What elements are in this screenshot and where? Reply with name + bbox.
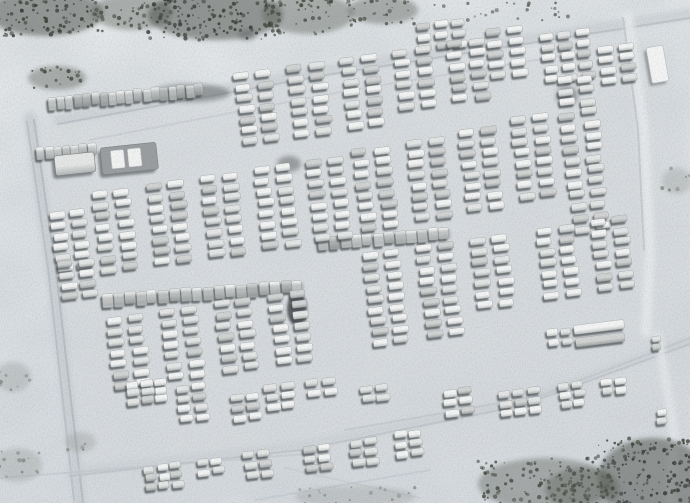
scrub-speck [28, 379, 31, 382]
scrub-speck [565, 470, 567, 472]
vehicle-cluster-b8 [496, 386, 543, 420]
scrub-speck [685, 454, 688, 457]
vehicle [577, 75, 592, 84]
scrub-speck [373, 12, 376, 15]
scrub-speck [681, 481, 683, 483]
vehicle [230, 236, 245, 245]
scrub-speck [26, 16, 28, 18]
vehicle [92, 190, 108, 199]
scrub-speck [667, 437, 671, 441]
scrub-speck [208, 10, 209, 11]
vehicle [190, 370, 205, 379]
scrub-speck [205, 25, 207, 27]
vehicle [396, 450, 409, 459]
vehicle [145, 473, 156, 481]
vehicle [436, 189, 451, 198]
vehicle [512, 127, 527, 136]
scrub-speck [236, 1, 238, 3]
scrub-speck [675, 187, 679, 191]
scrub-speck [442, 4, 446, 8]
scrub-speck [529, 462, 533, 466]
vehicle [461, 406, 475, 415]
scrub-speck [146, 24, 148, 26]
scrub-speck [283, 32, 285, 34]
vehicle [140, 379, 153, 387]
scrub-speck [17, 458, 21, 462]
vehicle [489, 201, 504, 210]
scrub-speck [546, 497, 548, 499]
scrub-speck [513, 3, 515, 5]
vehicle [528, 396, 541, 405]
vehicle [148, 194, 163, 203]
scrub-speck [34, 4, 37, 7]
vehicle-cluster-b15 [301, 443, 334, 475]
scrub-speck [551, 457, 554, 460]
scrub-speck [18, 21, 20, 23]
vehicle [389, 281, 404, 290]
vehicle [155, 394, 168, 402]
scrub-speck [618, 476, 620, 478]
vehicle [177, 404, 190, 413]
scrub-speck [524, 491, 526, 493]
scrub-speck [551, 493, 553, 495]
scrub-speck [66, 31, 68, 33]
scrub-speck [56, 66, 59, 69]
scrub-speck [529, 477, 531, 479]
scrub-speck [413, 486, 416, 489]
truck-body [54, 152, 96, 176]
scrub-speck [136, 12, 139, 15]
scrub-speck [298, 488, 301, 491]
scrub-speck [233, 28, 236, 31]
vehicle [95, 211, 110, 220]
scrub-speck [474, 15, 476, 17]
scrub-speck [596, 485, 599, 488]
scrub-speck [177, 10, 179, 12]
scrub-speck [319, 492, 321, 494]
scrub-speck [618, 472, 620, 474]
scrub-speck [52, 26, 54, 28]
scrub-speck [681, 439, 684, 442]
vehicle [613, 227, 628, 236]
vehicle [128, 325, 143, 334]
bodies [498, 386, 543, 418]
scrub-speck [652, 446, 656, 450]
vehicle [616, 248, 631, 257]
vehicle [163, 340, 179, 349]
scrub-speck [551, 7, 553, 9]
scrub-speck [194, 26, 196, 28]
scrub-speck [660, 186, 664, 190]
scrub-speck [247, 12, 249, 14]
vehicle [435, 31, 449, 39]
vehicle [281, 207, 296, 216]
scrub-speck [112, 14, 116, 18]
scrub-speck [199, 6, 200, 7]
vehicle [451, 18, 464, 26]
scrub-speck [49, 32, 53, 36]
scrub-speck [484, 499, 486, 501]
scrub-speck [22, 17, 25, 20]
scrub-speck [570, 497, 571, 498]
scrub-speck [229, 5, 232, 8]
scrub-speck [412, 22, 415, 25]
scrub-speck [543, 479, 546, 482]
scrub-speck [69, 21, 71, 23]
scrub-speck [138, 23, 141, 26]
scrub-speck [619, 441, 622, 444]
scrub-speck [617, 467, 621, 471]
scrub-speck [199, 32, 201, 34]
scrub-speck [170, 1, 172, 3]
scrub-speck [177, 6, 179, 8]
vehicle [459, 396, 473, 405]
vehicle [352, 458, 366, 467]
scrub-speck [43, 16, 45, 18]
vehicle [560, 328, 571, 336]
vehicle [548, 338, 559, 346]
vehicle [243, 136, 258, 145]
scrub-speck [539, 481, 543, 485]
scrub-speck [309, 487, 311, 489]
vehicle [181, 305, 197, 314]
scrub-speck [636, 440, 640, 444]
vehicle [614, 377, 626, 385]
scrub-speck [348, 4, 351, 7]
scrub-speck [5, 374, 8, 377]
vehicle-cluster-b16 [346, 436, 380, 470]
scrub-speck [477, 460, 480, 463]
scrub-speck [178, 22, 182, 26]
vehicle [220, 344, 236, 353]
vehicle [481, 137, 496, 146]
satellite-scene [0, 0, 690, 503]
scrub-speck [559, 465, 561, 467]
vehicle [615, 386, 627, 395]
scrub-speck [649, 449, 651, 451]
scrub-speck [4, 33, 8, 37]
scrub-speck [600, 495, 603, 498]
scrub-speck [80, 17, 84, 21]
vehicle [509, 36, 524, 45]
scrub-speck [45, 67, 47, 69]
scrub-speck [411, 18, 413, 20]
scrub-speck [25, 374, 29, 378]
scrub-speck [647, 474, 651, 478]
scrub-speck [32, 9, 35, 12]
scrub-speck [138, 26, 142, 30]
scrub-speck [349, 19, 351, 21]
vehicle [577, 39, 591, 48]
scrub-speck [400, 21, 403, 24]
scrub-speck [258, 28, 261, 31]
scrub-speck [63, 25, 66, 28]
scrub-speck [384, 488, 387, 491]
vehicle [163, 330, 179, 339]
scrub-speck [95, 19, 98, 22]
scrub-speck [466, 18, 470, 22]
scrub-speck [485, 462, 488, 465]
scrub-speck [148, 36, 152, 40]
scrub-speck [25, 1, 29, 5]
scrub-speck [199, 24, 202, 27]
vehicle [170, 470, 182, 478]
scrub-speck [611, 462, 613, 464]
scrub-speck [482, 494, 486, 498]
scrub-speck [521, 473, 524, 476]
scrub-speck [642, 468, 645, 471]
scrub-speck [241, 25, 243, 27]
scrub-speck [55, 79, 58, 82]
scrub-speck [218, 22, 221, 25]
scrub-speck [73, 14, 76, 17]
scrub-speck [25, 28, 27, 30]
scrub-speck [350, 24, 353, 27]
scrub-speck [224, 16, 226, 18]
scrub-speck [614, 466, 616, 468]
vehicle [307, 389, 321, 397]
scrub-speck [94, 13, 97, 16]
scrub-speck [45, 17, 48, 20]
vehicle [281, 391, 295, 399]
vehicle [560, 245, 575, 254]
scrub-speck [154, 8, 157, 11]
vehicle [282, 400, 295, 409]
vehicle [600, 378, 612, 386]
scrub-speck [346, 3, 348, 5]
vehicle [305, 378, 318, 387]
scrub-speck [58, 30, 62, 34]
vehicle [257, 449, 270, 457]
vehicle [141, 387, 155, 395]
vehicle [130, 335, 145, 344]
scrub-speck [6, 19, 8, 21]
scrub-speck [132, 7, 134, 9]
scrub-speck [572, 489, 576, 493]
scrub-speck [504, 482, 507, 485]
scrub-speck [407, 1, 409, 3]
vehicle [527, 386, 540, 394]
scrub-speck [229, 11, 233, 15]
vehicle [233, 415, 247, 424]
scrub-speck [142, 14, 146, 18]
vehicle [197, 469, 210, 477]
vehicle [304, 455, 316, 463]
scrub-speck [637, 452, 639, 454]
scrub-speck [156, 20, 159, 23]
scrub-speck [222, 8, 226, 12]
scrub-speck [670, 444, 674, 448]
scrub-speck [7, 13, 9, 15]
scrub-speck [527, 462, 530, 465]
scrub-speck [657, 461, 660, 464]
vehicle [562, 337, 573, 345]
scrub-speck [78, 79, 82, 83]
vehicle [155, 387, 167, 396]
vehicle [291, 97, 306, 106]
scrub-speck [232, 2, 236, 6]
vehicle [243, 351, 258, 360]
scrub-speck [15, 19, 17, 21]
scrub-speck [646, 479, 648, 481]
scrub-speck [4, 2, 6, 4]
scrub-speck [358, 17, 362, 21]
scrub-speck [137, 7, 140, 10]
scrub-speck [643, 460, 646, 463]
scrub-speck [434, 4, 436, 6]
scrub-speck [587, 494, 590, 497]
scrub-speck [519, 497, 523, 501]
scrub-speck [263, 23, 267, 27]
vehicle [167, 362, 183, 371]
scrub-speck [21, 471, 24, 474]
vehicle [213, 466, 225, 474]
scrub-speck [669, 167, 673, 171]
scrub-speck [663, 469, 664, 470]
scrub-speck [583, 493, 586, 496]
scrub-speck [558, 16, 560, 18]
vehicle [476, 92, 492, 101]
scrub-speck [18, 0, 22, 4]
scrub-speck [553, 494, 556, 497]
scrub-speck [525, 493, 527, 495]
scrub-speck [192, 14, 194, 16]
scrub-speck [554, 13, 557, 16]
scrub-speck [581, 486, 583, 488]
scrub-speck [379, 486, 382, 489]
vehicle [652, 343, 661, 350]
scrub-speck [619, 492, 623, 496]
scrub-speck [540, 478, 542, 480]
scrub-speck [62, 16, 65, 19]
vehicle [366, 457, 379, 466]
vehicle [278, 186, 294, 195]
scrub-speck [322, 30, 325, 33]
vehicle [364, 447, 377, 456]
vehicle [498, 390, 510, 398]
scrub-speck [568, 468, 572, 472]
scrub-speck [678, 462, 681, 465]
vehicle [362, 394, 376, 403]
vehicle [197, 458, 209, 466]
scrub-speck [4, 28, 7, 31]
vehicle [542, 270, 557, 279]
scrub-speck [646, 452, 649, 455]
scrub-speck [219, 15, 222, 18]
scrub-speck [14, 4, 16, 6]
scrub-speck [483, 492, 485, 494]
scrub-speck [90, 10, 92, 12]
scrub-speck [675, 482, 679, 486]
scrub-speck [201, 36, 205, 40]
scrub-speck [534, 463, 536, 465]
vehicle [657, 408, 667, 416]
scrub-speck [186, 23, 188, 25]
scrub-speck [164, 19, 168, 23]
scrub-speck [173, 5, 177, 9]
scrub-patch-p20 [238, 30, 256, 40]
scrub-speck [355, 21, 357, 23]
scrub-speck [229, 25, 233, 29]
vehicle [263, 383, 277, 392]
scrub-speck [323, 494, 326, 497]
vehicle [420, 266, 435, 275]
scrub-speck [607, 466, 610, 469]
scrub-speck [353, 8, 355, 10]
vehicle [364, 436, 377, 444]
vehicle [157, 463, 168, 471]
scrub-speck [64, 8, 67, 11]
scrub-speck [495, 8, 499, 12]
vehicle [350, 439, 362, 448]
vehicle [441, 274, 457, 283]
vehicle [172, 480, 184, 488]
scrub-speck [192, 4, 196, 8]
scrub-speck [684, 468, 687, 471]
scrub-speck [598, 445, 599, 446]
scrub-speck [633, 451, 636, 454]
scrub-speck [685, 176, 687, 178]
vehicle [159, 473, 170, 482]
scrub-speck [176, 33, 180, 37]
scrub-speck [43, 26, 45, 28]
scrub-speck [549, 470, 551, 472]
scrub-speck [537, 495, 541, 499]
vehicle [559, 391, 571, 399]
vehicle [561, 124, 576, 133]
scrub-speck [331, 0, 333, 2]
vehicle [395, 441, 407, 449]
scrub-speck [86, 10, 88, 12]
scrub-speck [142, 21, 145, 24]
scrub-speck [672, 474, 676, 478]
scrub-speck [529, 470, 533, 474]
vehicle [150, 214, 165, 223]
scrub-speck [580, 485, 582, 487]
scrub-speck [101, 18, 105, 22]
vehicle [443, 398, 457, 406]
scrub-speck [164, 3, 167, 6]
vehicle [620, 280, 635, 289]
scrub-speck [627, 453, 629, 455]
vehicle [545, 65, 558, 74]
scrub-speck [235, 9, 237, 11]
vehicle [412, 182, 427, 191]
scrub-mass [66, 432, 96, 452]
scrub-speck [571, 484, 575, 488]
scrub-speck [623, 481, 624, 482]
vehicle [656, 417, 667, 425]
scrub-speck [351, 18, 354, 21]
scrub-speck [677, 441, 681, 445]
vehicle [540, 33, 554, 41]
scrub-speck [64, 4, 68, 8]
scrub-speck [317, 6, 320, 9]
vehicle [515, 398, 528, 407]
scrub-speck [600, 484, 604, 488]
scrub-speck [205, 34, 209, 38]
scrub-speck [612, 447, 614, 449]
scrub-speck [541, 19, 543, 21]
scrub-speck [317, 16, 321, 20]
scrub-speck [571, 498, 575, 502]
vehicle [580, 98, 596, 107]
scrub-speck [260, 38, 262, 40]
scrub-patch-p18 [66, 432, 96, 452]
vehicle [579, 60, 593, 69]
scrub-speck [20, 9, 23, 12]
scrub-speck [268, 4, 271, 7]
